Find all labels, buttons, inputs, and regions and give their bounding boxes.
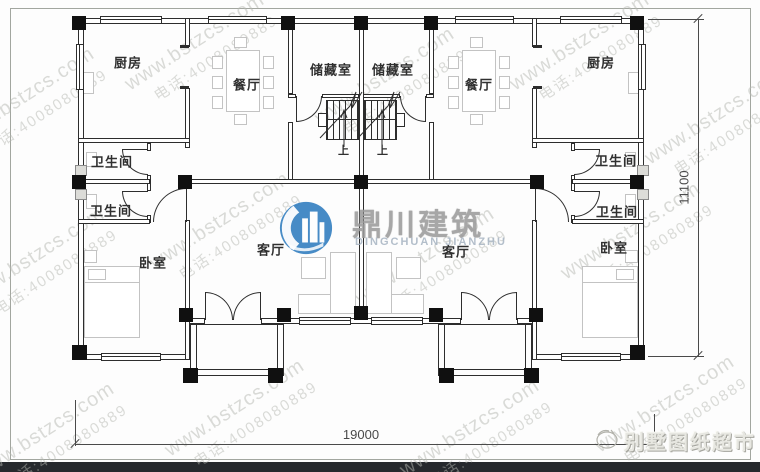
furniture-chair xyxy=(234,114,247,125)
wall-segment xyxy=(288,122,293,184)
vent-window xyxy=(75,189,87,200)
wall-segment xyxy=(185,18,190,47)
room-label-bath-left-lower: 卫生间 xyxy=(90,201,132,220)
furniture-bed-line xyxy=(582,282,638,283)
room-label-bath-left-upper: 卫生间 xyxy=(91,152,133,171)
window xyxy=(638,44,646,90)
door-panel xyxy=(535,188,536,222)
door-panel xyxy=(186,188,187,222)
furniture-pillow xyxy=(616,269,634,280)
column xyxy=(630,345,645,360)
window xyxy=(455,16,514,24)
vent-window xyxy=(637,189,649,200)
window xyxy=(76,44,84,90)
furniture-coffee-table xyxy=(301,257,326,279)
column xyxy=(354,306,368,320)
door-panel xyxy=(461,292,462,320)
wall-segment-party xyxy=(359,18,364,320)
door-panel xyxy=(425,96,426,122)
brand-logo-icon xyxy=(278,200,334,256)
room-label-dining-right: 餐厅 xyxy=(465,75,493,94)
room-label-storage-right: 储藏室 xyxy=(372,60,414,79)
room-label-bedroom-left: 卧室 xyxy=(139,253,167,272)
window xyxy=(371,317,423,325)
brand-watermark: 鼎川建筑 DINGCHUAN JIANZHU xyxy=(278,200,513,255)
column xyxy=(630,175,644,189)
room-label-kitchen-right: 厨房 xyxy=(587,53,615,72)
wall-segment xyxy=(426,94,434,98)
furniture-chair xyxy=(212,76,223,89)
door-panel xyxy=(205,292,206,320)
footer-logo-icon xyxy=(594,427,620,451)
column xyxy=(424,16,438,30)
window xyxy=(561,353,621,361)
door-panel xyxy=(516,292,517,320)
room-label-bedroom-right: 卧室 xyxy=(600,238,628,257)
furniture-chair xyxy=(234,37,247,48)
wall-segment xyxy=(532,18,537,47)
column xyxy=(429,308,443,322)
furniture-chair xyxy=(470,114,483,125)
window xyxy=(560,16,622,24)
wall-segment xyxy=(532,138,644,143)
porch-right-inner xyxy=(444,324,526,370)
door-panel xyxy=(574,191,600,192)
furniture-chair xyxy=(448,56,459,69)
door-jamb xyxy=(533,45,542,48)
furniture-nightstand xyxy=(84,250,97,263)
stair-up-label-left: 上 xyxy=(338,142,350,158)
furniture-chair xyxy=(263,56,274,69)
dim-extension-line xyxy=(75,400,76,446)
door-panel xyxy=(260,292,261,320)
stair-up-label-right: 上 xyxy=(377,142,389,158)
column xyxy=(530,175,544,189)
furniture-chair xyxy=(448,96,459,109)
furniture-coffee-table xyxy=(396,257,421,279)
wall-segment xyxy=(288,94,296,98)
dim-line-height xyxy=(698,19,699,357)
bottom-bar xyxy=(0,462,760,472)
window xyxy=(208,16,267,24)
column xyxy=(72,16,86,30)
window xyxy=(100,16,162,24)
column xyxy=(277,308,291,322)
wall-segment xyxy=(78,138,190,143)
furniture-chair xyxy=(499,76,510,89)
column xyxy=(524,368,539,383)
floor-plan-page: www.bstzcs.com电话:4008080889 www.bstzcs.c… xyxy=(0,0,760,472)
furniture-sofa xyxy=(298,294,331,314)
room-label-storage-left: 储藏室 xyxy=(310,60,352,79)
footer-logo: 别墅图纸超市 xyxy=(594,424,754,454)
wall-segment xyxy=(78,219,150,224)
furniture-chair xyxy=(499,96,510,109)
stair-linework xyxy=(310,85,410,160)
column xyxy=(183,368,198,383)
column xyxy=(179,308,193,322)
room-label-kitchen-left: 厨房 xyxy=(114,53,142,72)
furniture-bed-line xyxy=(84,282,140,283)
dim-label-height: 11100 xyxy=(677,163,692,213)
brand-latin-name: DINGCHUAN JIANZHU xyxy=(355,236,507,248)
furniture-chair xyxy=(448,76,459,89)
door-jamb xyxy=(180,86,189,89)
column xyxy=(439,368,454,383)
door-panel xyxy=(296,96,297,122)
column xyxy=(72,345,87,360)
door-jamb xyxy=(180,45,189,48)
furniture-sofa xyxy=(366,252,392,314)
furniture-sofa xyxy=(330,252,356,314)
furniture-chair xyxy=(212,96,223,109)
column xyxy=(178,175,192,189)
column xyxy=(281,16,295,30)
furniture-sofa xyxy=(391,294,424,314)
room-label-bath-right-upper: 卫生间 xyxy=(595,151,637,170)
room-label-bath-right-lower: 卫生间 xyxy=(596,202,638,221)
furniture-chair xyxy=(499,56,510,69)
dim-label-width: 19000 xyxy=(331,427,391,442)
column xyxy=(630,16,644,30)
porch-left-inner xyxy=(196,324,278,370)
column xyxy=(72,175,86,189)
door-jamb xyxy=(533,86,542,89)
wall-segment xyxy=(78,179,150,184)
room-label-dining-left: 餐厅 xyxy=(233,75,261,94)
wall-segment xyxy=(532,220,537,360)
column xyxy=(354,16,368,30)
footer-logo-text: 别墅图纸超市 xyxy=(624,426,756,455)
furniture-chair xyxy=(263,96,274,109)
window xyxy=(101,353,161,361)
door-panel xyxy=(122,191,148,192)
furniture-chair xyxy=(263,76,274,89)
window xyxy=(299,317,351,325)
dim-line-width xyxy=(75,444,655,445)
wall-segment xyxy=(429,122,434,184)
furniture-chair xyxy=(212,56,223,69)
column xyxy=(268,368,283,383)
furniture-pillow xyxy=(88,269,106,280)
column xyxy=(354,175,368,189)
column xyxy=(529,308,543,322)
furniture-chair xyxy=(470,37,483,48)
door-panel xyxy=(122,149,148,150)
